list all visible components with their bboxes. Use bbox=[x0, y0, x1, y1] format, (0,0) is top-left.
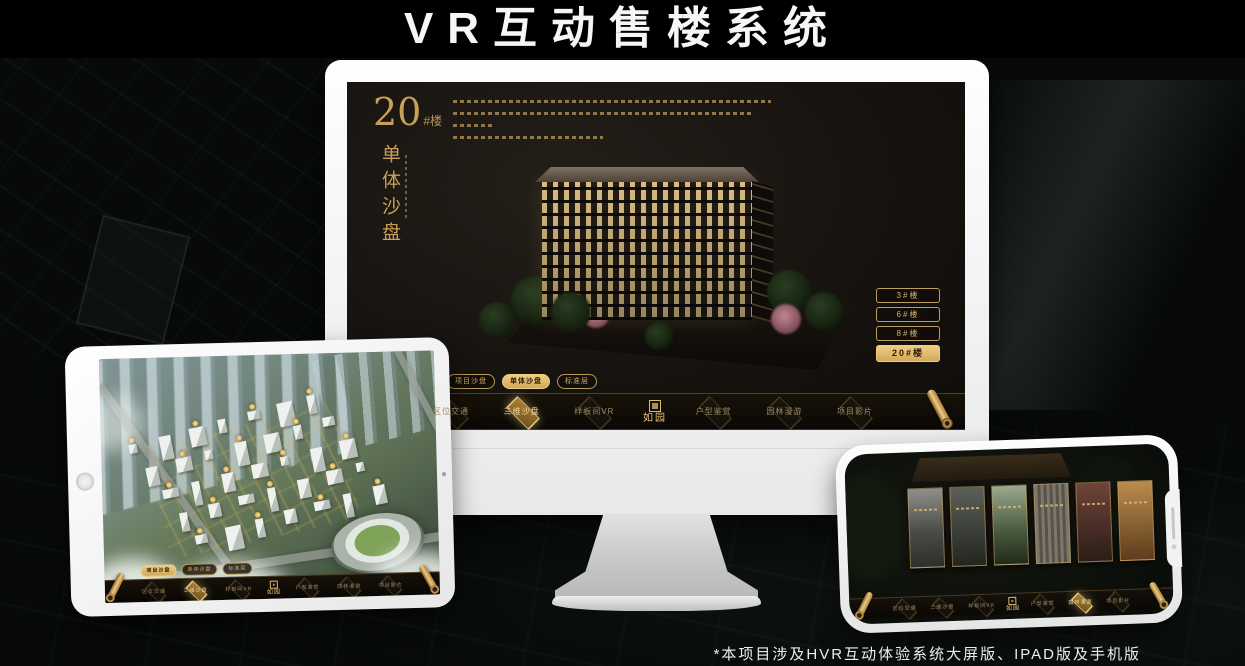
interior-beam bbox=[910, 453, 1071, 483]
scene-card-caption bbox=[1040, 504, 1063, 507]
aerial-building bbox=[247, 410, 261, 421]
aerial-building bbox=[208, 502, 223, 518]
aerial-building bbox=[309, 447, 326, 473]
building-number-marker[interactable] bbox=[305, 387, 312, 394]
scene-card[interactable] bbox=[1033, 483, 1071, 564]
nav-item[interactable]: 项目影片 bbox=[1103, 594, 1133, 606]
brand-logo-text: 如园 bbox=[643, 414, 667, 424]
nav-item[interactable]: 园林漫游 bbox=[760, 403, 808, 420]
aerial-building bbox=[191, 481, 204, 506]
aerial-building bbox=[293, 425, 304, 440]
scene-card-caption bbox=[1124, 501, 1147, 504]
aerial-building bbox=[145, 465, 161, 486]
tablet-home-button bbox=[76, 472, 94, 490]
aerial-building bbox=[306, 394, 318, 414]
aerial-building bbox=[339, 438, 358, 460]
block-number: 20 bbox=[373, 90, 421, 134]
section-title-vertical: 单体沙盘 bbox=[377, 144, 404, 248]
building-number-marker[interactable] bbox=[222, 465, 229, 472]
aerial-building bbox=[195, 533, 209, 544]
nav-item[interactable]: 户型鉴赏 bbox=[690, 403, 738, 420]
building-number-marker[interactable] bbox=[235, 434, 242, 441]
monitor-stand-base bbox=[552, 596, 761, 611]
nav-item[interactable]: 区位交通 bbox=[139, 585, 169, 597]
scroll-handle-icon[interactable] bbox=[1148, 581, 1167, 607]
nav-item[interactable]: 样板间VR bbox=[568, 403, 620, 420]
aerial-building bbox=[326, 468, 344, 485]
scene-card-caption bbox=[1082, 503, 1105, 506]
aerial-building bbox=[254, 518, 266, 538]
aerial-building bbox=[234, 441, 251, 467]
building-number-marker[interactable] bbox=[329, 463, 336, 470]
aerial-building bbox=[296, 478, 312, 499]
aerial-building bbox=[267, 487, 280, 512]
nav-item[interactable]: 园林漫游 bbox=[1065, 596, 1095, 608]
scene-card[interactable] bbox=[1117, 480, 1155, 561]
view-tab[interactable]: 项目沙盘 bbox=[140, 564, 176, 577]
aerial-building bbox=[284, 509, 299, 525]
promo-canvas: VR互动售楼系统 20#楼 单体沙盘 bbox=[0, 0, 1245, 666]
brand-logo: 如园 bbox=[1006, 596, 1021, 611]
brand-seal-icon bbox=[1009, 596, 1017, 604]
view-tab-group: 项目沙盘单体沙盘标准层 bbox=[447, 374, 597, 389]
building-number-marker[interactable] bbox=[165, 481, 172, 488]
aerial-building bbox=[204, 450, 214, 460]
view-tab[interactable]: 单体沙盘 bbox=[502, 374, 550, 389]
building-3d-render[interactable] bbox=[467, 152, 867, 402]
description-line bbox=[453, 124, 495, 127]
brand-seal-icon bbox=[649, 400, 661, 412]
tablet-screen: 项目沙盘单体沙盘标准层 区位交通三维沙盘样板间VR如园户型鉴赏园林漫游项目影片 bbox=[99, 350, 440, 603]
aerial-building bbox=[217, 419, 228, 434]
building-number-marker[interactable] bbox=[210, 496, 217, 503]
view-tab[interactable]: 标准层 bbox=[222, 562, 252, 575]
floor-button[interactable]: 6#楼 bbox=[876, 307, 940, 322]
aerial-building bbox=[221, 472, 237, 493]
building-number-marker[interactable] bbox=[374, 477, 381, 484]
tree bbox=[645, 322, 673, 350]
aerial-building bbox=[372, 484, 388, 505]
building-number-marker[interactable] bbox=[342, 432, 349, 439]
view-tab[interactable]: 单体沙盘 bbox=[181, 563, 217, 576]
footnote-text: *本项目涉及HVR互动体验系统大屏版、IPAD版及手机版 bbox=[714, 643, 1141, 664]
block-heading: 20#楼 bbox=[373, 90, 442, 134]
aerial-building bbox=[343, 493, 356, 518]
building-number-marker[interactable] bbox=[292, 418, 299, 425]
plant-silhouette bbox=[844, 471, 906, 583]
description-line bbox=[453, 100, 771, 103]
phone-notch bbox=[1165, 489, 1183, 567]
brand-logo: 如园 bbox=[643, 400, 667, 424]
aerial-building bbox=[280, 456, 290, 466]
tree bbox=[805, 292, 843, 330]
scene-card[interactable] bbox=[907, 487, 945, 568]
aerial-building bbox=[225, 524, 245, 551]
tablet-camera bbox=[442, 472, 446, 476]
phone-screen: 区位交通三维沙盘样板间VR如园户型鉴赏园林漫游项目影片 bbox=[844, 443, 1174, 624]
description-paragraph bbox=[453, 100, 771, 148]
building-number-marker[interactable] bbox=[279, 449, 286, 456]
phone-device: 区位交通三维沙盘样板间VR如园户型鉴赏园林漫游项目影片 bbox=[835, 434, 1183, 634]
view-tab[interactable]: 标准层 bbox=[557, 374, 597, 389]
aerial-building bbox=[237, 493, 254, 505]
nav-item[interactable]: 样板间VR bbox=[222, 583, 255, 595]
floor-button[interactable]: 20#楼 bbox=[876, 345, 940, 362]
aerial-building bbox=[322, 416, 336, 427]
aerial-building bbox=[188, 425, 207, 447]
brand-seal-icon bbox=[270, 580, 278, 588]
nav-item[interactable]: 区位交通 bbox=[889, 602, 919, 614]
section-subtitle-decor bbox=[405, 152, 407, 218]
nav-item[interactable]: 三维沙盘 bbox=[927, 600, 957, 612]
floor-button-group: 3#楼6#楼8#楼20#楼 bbox=[876, 288, 940, 366]
scene-card-caption bbox=[956, 507, 979, 510]
building-number-marker[interactable] bbox=[267, 480, 274, 487]
building-number-marker[interactable] bbox=[191, 420, 198, 427]
aerial-building bbox=[250, 462, 268, 479]
floor-button[interactable]: 3#楼 bbox=[876, 288, 940, 303]
building-number-marker[interactable] bbox=[178, 451, 185, 458]
nav-item[interactable]: 项目影片 bbox=[376, 579, 406, 591]
scene-gallery bbox=[907, 480, 1155, 569]
blossom-tree bbox=[771, 304, 801, 334]
phone-speaker bbox=[1171, 507, 1175, 539]
aerial-building bbox=[158, 435, 175, 461]
phone-bottom-nav: 区位交通三维沙盘样板间VR如园户型鉴赏园林漫游项目影片 bbox=[849, 587, 1174, 619]
scene-card[interactable] bbox=[1075, 481, 1113, 562]
phone-camera-icon bbox=[1171, 544, 1176, 549]
floor-button[interactable]: 8#楼 bbox=[876, 326, 940, 341]
aerial-building bbox=[178, 512, 190, 532]
nav-item[interactable]: 园林漫游 bbox=[334, 580, 364, 592]
scene-card-caption bbox=[914, 509, 937, 512]
page-title: VR互动售楼系统 bbox=[0, 0, 1245, 58]
building-number-marker[interactable] bbox=[254, 511, 261, 518]
view-tab[interactable]: 项目沙盘 bbox=[447, 374, 495, 389]
tree bbox=[551, 292, 591, 332]
building-number-marker[interactable] bbox=[197, 527, 204, 534]
aerial-building bbox=[175, 456, 193, 473]
nav-item[interactable]: 三维沙盘 bbox=[180, 584, 210, 596]
brand-logo: 如园 bbox=[267, 580, 281, 595]
brand-logo-text: 如园 bbox=[1006, 605, 1020, 611]
description-line bbox=[453, 136, 603, 139]
tablet-device: 项目沙盘单体沙盘标准层 区位交通三维沙盘样板间VR如园户型鉴赏园林漫游项目影片 bbox=[65, 337, 456, 617]
scroll-handle-icon[interactable] bbox=[856, 591, 874, 617]
nav-item[interactable]: 项目影片 bbox=[831, 403, 879, 420]
nav-item[interactable]: 户型鉴赏 bbox=[1027, 597, 1057, 609]
description-line bbox=[453, 112, 753, 115]
scene-card-caption bbox=[998, 506, 1021, 509]
aerial-building bbox=[162, 487, 179, 499]
nav-item[interactable]: 三维沙盘 bbox=[498, 403, 546, 420]
scroll-handle-icon[interactable] bbox=[926, 388, 952, 426]
scene-card[interactable] bbox=[991, 484, 1029, 565]
brand-logo-text: 如园 bbox=[267, 589, 281, 595]
aerial-building bbox=[355, 462, 365, 472]
tree bbox=[479, 302, 515, 338]
scene-card[interactable] bbox=[949, 486, 987, 567]
nav-item[interactable]: 户型鉴赏 bbox=[292, 581, 322, 593]
nav-item[interactable]: 样板间VR bbox=[965, 599, 998, 611]
aerial-building bbox=[313, 499, 330, 511]
building-number-marker[interactable] bbox=[317, 494, 324, 501]
block-number-suffix: #楼 bbox=[423, 114, 442, 128]
